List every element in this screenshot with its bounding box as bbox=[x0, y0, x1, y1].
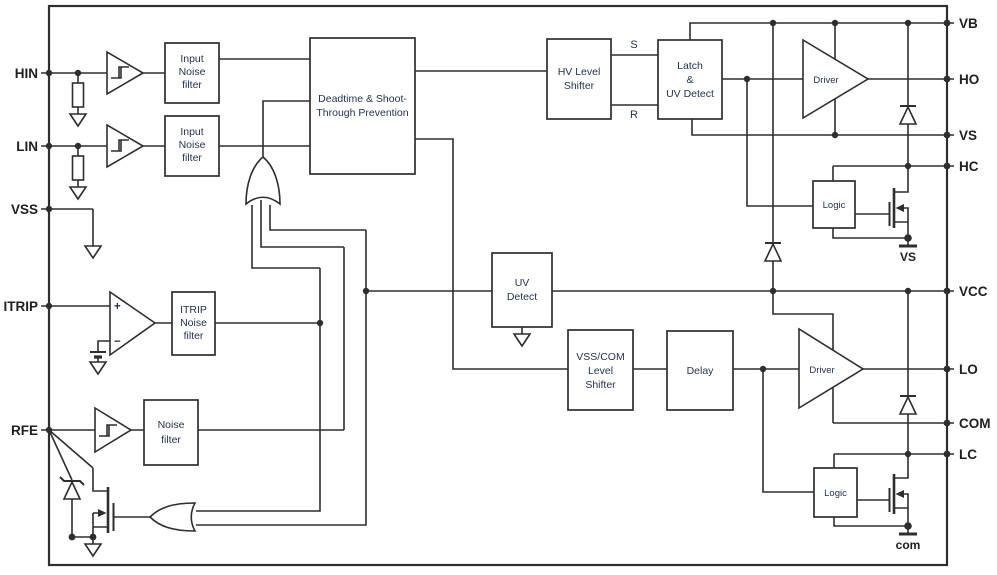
driver-high-label: Driver bbox=[813, 75, 838, 86]
block-label: Input bbox=[180, 126, 203, 138]
net-rfe-fet-source bbox=[72, 513, 108, 544]
junction-dot bbox=[46, 143, 52, 149]
block-label: HV Level bbox=[558, 66, 601, 78]
net-vb bbox=[690, 23, 954, 40]
driver-low: Driver bbox=[799, 329, 863, 408]
set-label: S bbox=[630, 39, 637, 51]
net-itrip-fault bbox=[196, 205, 320, 511]
pin-label-hc: HC bbox=[959, 159, 979, 174]
block-label: Shifter bbox=[564, 80, 595, 92]
pin-label-lin: LIN bbox=[16, 139, 38, 154]
pin-dot bbox=[944, 76, 951, 83]
com-tap-label: com bbox=[896, 538, 921, 552]
block-vss-com-level-shifter: VSS/COM Level Shifter bbox=[568, 330, 633, 410]
zener-diode-icon bbox=[60, 477, 84, 499]
block-label: Latch bbox=[677, 60, 703, 72]
block-label: Noise bbox=[179, 139, 206, 151]
pin-labels-right: VB HO VS HC VCC LO COM LC bbox=[959, 16, 991, 462]
pin-label-rfe: RFE bbox=[11, 423, 38, 438]
block-label: UV Detect bbox=[666, 88, 714, 100]
schmitt-buffer-rfe bbox=[95, 408, 131, 452]
pin-labels-left: HIN LIN VSS ITRIP RFE bbox=[3, 66, 38, 438]
junction-dot bbox=[317, 320, 323, 326]
pin-label-vs: VS bbox=[959, 128, 977, 143]
block-hin-filter: Input Noise filter bbox=[165, 43, 219, 103]
pin-dot bbox=[944, 451, 951, 458]
junction-dot bbox=[75, 143, 81, 149]
diagram-canvas: + − bbox=[0, 0, 997, 575]
block-label: filter bbox=[184, 330, 204, 342]
pin-dot bbox=[944, 132, 951, 139]
block-label: Delay bbox=[687, 365, 715, 377]
pin-dot bbox=[944, 20, 951, 27]
junction-dot bbox=[905, 163, 911, 169]
block-delay: Delay bbox=[667, 331, 733, 410]
net-uv-fault bbox=[196, 205, 366, 525]
junction-dot bbox=[46, 303, 52, 309]
ground-icon bbox=[90, 362, 106, 374]
block-label: Shifter bbox=[585, 379, 616, 391]
junction-dot bbox=[46, 206, 52, 212]
block-label: Through Prevention bbox=[316, 107, 408, 119]
junction-dot bbox=[770, 20, 776, 26]
pin-label-lc: LC bbox=[959, 447, 977, 462]
block-label: Deadtime & Shoot- bbox=[318, 93, 407, 105]
block-itrip-filter: ITRIP Noise filter bbox=[172, 292, 215, 355]
ground-icon bbox=[514, 334, 530, 346]
junction-dot bbox=[75, 70, 81, 76]
net-latch-out bbox=[722, 79, 813, 206]
gate-driver-block-diagram: + − bbox=[0, 0, 997, 575]
pin-dot bbox=[944, 366, 951, 373]
junction-dot bbox=[905, 288, 911, 294]
block-latch-uv-detect: Latch & UV Detect bbox=[658, 40, 722, 119]
net-lc bbox=[834, 454, 954, 468]
block-label: filter bbox=[161, 434, 181, 446]
schmitt-buffer-hin bbox=[107, 52, 143, 94]
pin-label-vb: VB bbox=[959, 16, 978, 31]
pin-label-vcc: VCC bbox=[959, 284, 988, 299]
block-label: Noise bbox=[158, 419, 185, 431]
block-logic-low: Logic bbox=[814, 468, 857, 517]
junction-dot bbox=[46, 70, 52, 76]
com-rail-tap: com bbox=[896, 534, 921, 552]
junction-dot bbox=[363, 288, 369, 294]
block-label: Level bbox=[588, 365, 613, 377]
ground-icon bbox=[70, 187, 86, 199]
reset-label: R bbox=[630, 109, 638, 121]
block-label: UV bbox=[515, 277, 530, 289]
net-or1-out bbox=[263, 101, 310, 157]
junction-dot bbox=[905, 451, 911, 457]
block-label: filter bbox=[182, 152, 202, 164]
itrip-comparator: + − bbox=[110, 292, 155, 355]
net-rfe-fault bbox=[261, 200, 344, 430]
driver-low-label: Driver bbox=[809, 365, 834, 376]
comparator-minus-label: − bbox=[114, 336, 121, 348]
pin-label-vss: VSS bbox=[11, 202, 38, 217]
clamp-diode-low-icon bbox=[900, 396, 916, 414]
block-label: Input bbox=[180, 53, 203, 65]
mosfet-arrow bbox=[98, 509, 107, 517]
vs-rail-tap: VS bbox=[899, 246, 917, 264]
block-uv-detect: UV Detect bbox=[492, 253, 552, 327]
block-label: Noise bbox=[180, 317, 207, 329]
junction-dot bbox=[832, 20, 838, 26]
pin-label-itrip: ITRIP bbox=[3, 299, 38, 314]
block-label: Noise bbox=[179, 66, 206, 78]
block-label: & bbox=[686, 74, 693, 86]
net-hc bbox=[833, 166, 954, 181]
block-label: Logic bbox=[823, 200, 846, 211]
pin-label-hin: HIN bbox=[15, 66, 38, 81]
ground-icon bbox=[85, 544, 101, 556]
block-deadtime: Deadtime & Shoot- Through Prevention bbox=[310, 38, 415, 174]
pin-dot bbox=[944, 163, 951, 170]
mosfet-arrow bbox=[896, 204, 905, 212]
junction-dot bbox=[46, 427, 52, 433]
pin-dot bbox=[944, 420, 951, 427]
block-label: filter bbox=[182, 79, 202, 91]
junction-dot bbox=[760, 366, 766, 372]
comparator-plus-label: + bbox=[114, 301, 121, 313]
block-label: Logic bbox=[824, 488, 847, 499]
junction-dot bbox=[744, 76, 750, 82]
bootstrap-diode-icon bbox=[765, 243, 781, 261]
resistor-hin bbox=[73, 83, 84, 107]
junction-dot bbox=[832, 132, 838, 138]
block-lin-filter: Input Noise filter bbox=[165, 116, 219, 176]
resistor-lin bbox=[73, 156, 84, 180]
ground-icon bbox=[70, 114, 86, 126]
net-clamp-low bbox=[895, 291, 908, 478]
block-rfe-filter: Noise filter bbox=[144, 400, 198, 465]
junction-dot bbox=[90, 534, 97, 541]
pin-label-lo: LO bbox=[959, 362, 978, 377]
junction-dot bbox=[905, 20, 911, 26]
block-label: ITRIP bbox=[180, 304, 207, 316]
block-hv-level-shifter: HV Level Shifter bbox=[547, 39, 611, 119]
block-label: VSS/COM bbox=[576, 351, 624, 363]
clamp-diode-high-icon bbox=[900, 106, 916, 124]
mosfet-arrow bbox=[896, 490, 905, 498]
junction-dot bbox=[904, 234, 912, 242]
reference-battery-icon bbox=[90, 352, 106, 357]
pin-label-ho: HO bbox=[959, 72, 979, 87]
or-gate-fault-up bbox=[246, 157, 280, 204]
junction-dot bbox=[904, 522, 912, 530]
junction-dot bbox=[770, 288, 776, 294]
block-logic-high: Logic bbox=[813, 181, 855, 228]
pin-dot bbox=[944, 288, 951, 295]
pin-label-com: COM bbox=[959, 416, 991, 431]
rfe-clamp-mosfet bbox=[98, 487, 114, 533]
vs-tap-label: VS bbox=[900, 250, 916, 264]
or-gate-rfe-pull bbox=[150, 503, 195, 531]
ground-icon bbox=[85, 246, 101, 258]
junction-dot bbox=[69, 534, 76, 541]
schmitt-buffer-lin bbox=[107, 125, 143, 167]
block-label: Detect bbox=[507, 291, 537, 303]
